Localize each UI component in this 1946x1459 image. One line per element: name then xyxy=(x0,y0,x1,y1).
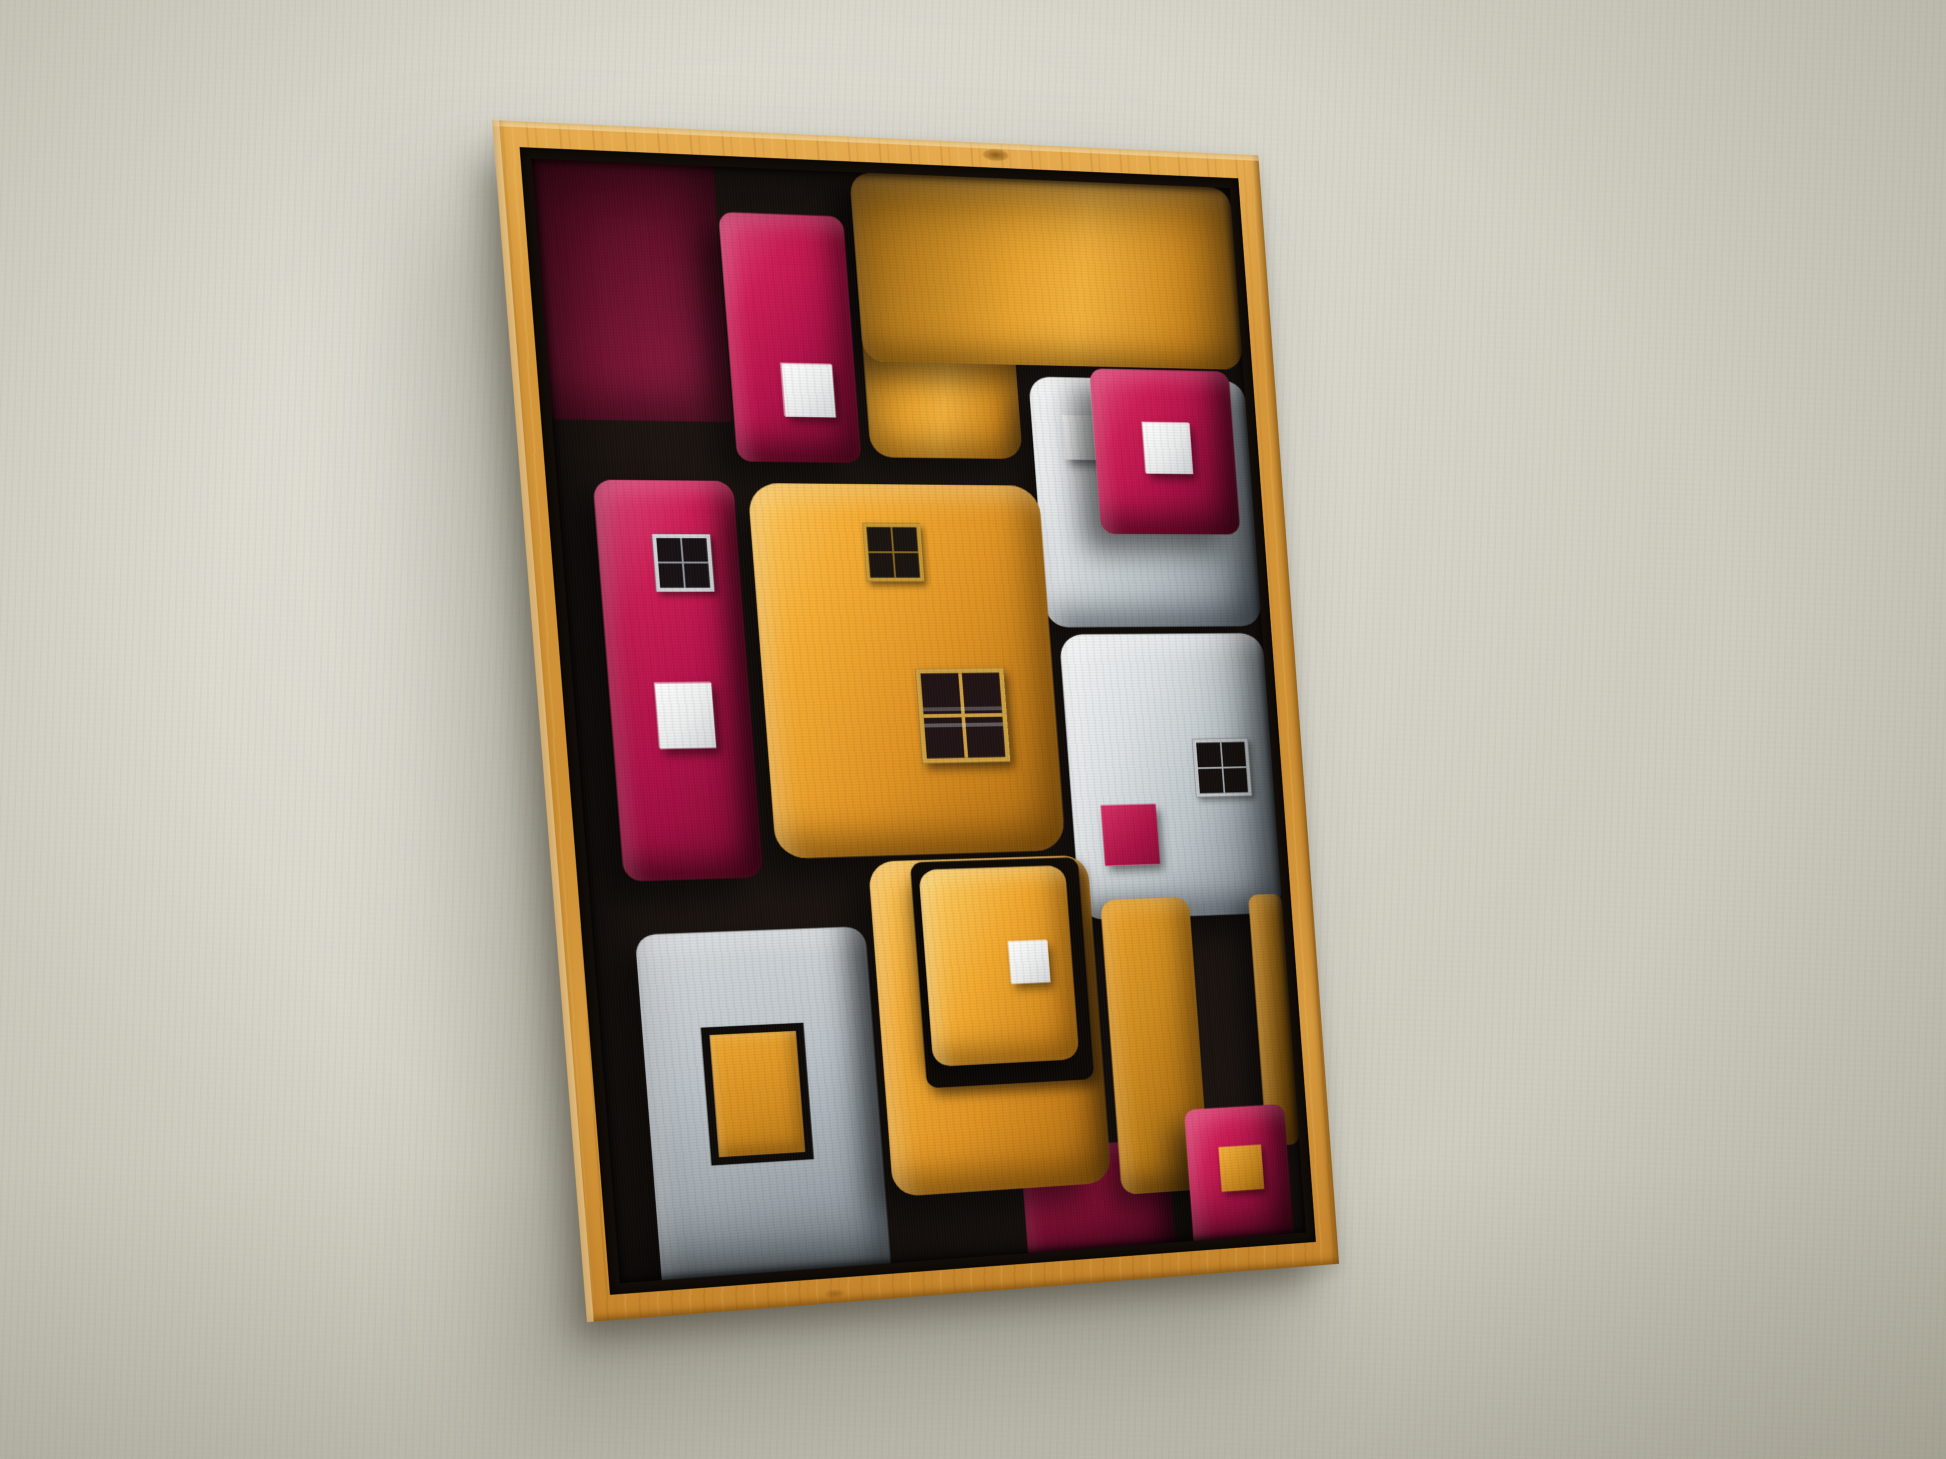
yellow-framed-square xyxy=(701,1023,814,1166)
maroon-panel-top-left xyxy=(531,159,732,422)
white-square xyxy=(655,683,716,749)
small-window xyxy=(862,523,924,581)
wood-knot xyxy=(982,148,1010,162)
wood-knot xyxy=(825,1289,846,1299)
picture-frame xyxy=(492,120,1339,1322)
magenta-bottom-right-block xyxy=(1184,1104,1295,1258)
orange-top-band xyxy=(849,172,1243,370)
dark-window xyxy=(652,534,715,592)
white-square xyxy=(1142,423,1193,475)
magenta-tall-left-block xyxy=(593,480,764,882)
frame-liner xyxy=(520,147,1316,1295)
dark-window xyxy=(1192,738,1252,797)
white-square xyxy=(781,364,836,418)
painting-canvas xyxy=(531,159,1306,1284)
small-yellow-inner-block xyxy=(918,865,1079,1066)
framed-artwork xyxy=(492,120,1339,1322)
black-inset-outline xyxy=(910,857,1094,1088)
abstract-painting xyxy=(531,159,1306,1284)
white-square xyxy=(1009,940,1051,984)
gray-right-lower-block xyxy=(1059,633,1283,920)
magenta-square xyxy=(1101,804,1160,866)
big-yellow-bottom-block xyxy=(868,855,1112,1197)
yellow-central-block xyxy=(747,483,1065,859)
gray-bottom-left-block xyxy=(635,926,892,1283)
magenta-top-block xyxy=(718,212,861,463)
large-window xyxy=(915,668,1010,764)
magenta-top-right-block xyxy=(1089,368,1240,534)
yellow-square xyxy=(1218,1144,1264,1191)
